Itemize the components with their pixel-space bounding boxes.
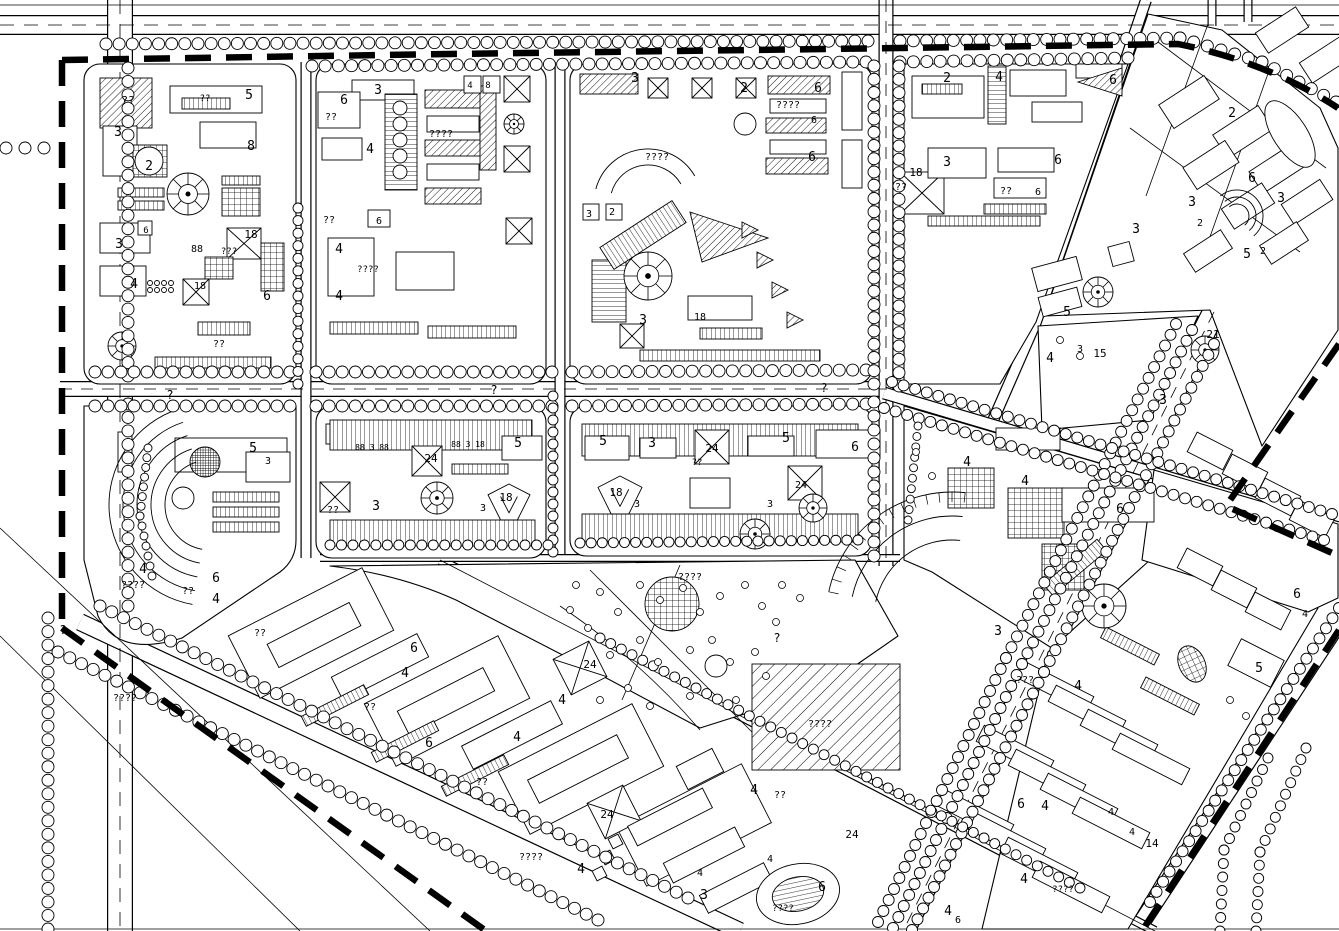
parcel-number-label: 18 [694, 312, 706, 323]
tree-icon [702, 57, 714, 69]
building [322, 138, 362, 160]
tree-icon [271, 400, 283, 412]
tree-icon [412, 758, 424, 770]
parcel-number-label: 3 [648, 436, 656, 451]
tree-icon [176, 641, 188, 653]
tree-icon [1078, 590, 1089, 601]
parcel-number-label: ? [166, 388, 173, 402]
tree-icon [332, 60, 344, 72]
tree-icon [888, 923, 899, 931]
parcel-number-label: 3 [586, 209, 592, 220]
tree-icon [586, 36, 598, 48]
tree-icon [1148, 400, 1159, 411]
tree-icon [139, 38, 151, 50]
tree-icon [687, 693, 694, 700]
tree-icon [753, 536, 763, 546]
tree-icon [1214, 503, 1225, 514]
tree-icon [440, 540, 450, 550]
tree-icon [1039, 577, 1050, 588]
tree-icon [1281, 789, 1291, 799]
tree-icon [967, 806, 978, 817]
tree-icon [1002, 411, 1013, 422]
flower-plaza [421, 482, 453, 514]
tree-icon [543, 58, 555, 70]
tree-icon [1180, 393, 1191, 404]
paved-terrace [222, 188, 260, 216]
parking-comb [213, 492, 279, 502]
tree-icon [334, 786, 346, 798]
building [585, 436, 629, 460]
tree-icon [376, 366, 388, 378]
hatched-building [425, 188, 481, 204]
tree-icon [868, 508, 880, 520]
parcel-number-label: ???? [113, 693, 137, 704]
parcel-number-label: 4 [1129, 827, 1135, 838]
tree-icon [868, 113, 880, 125]
parcel-number-label: 88 3 88 [355, 443, 389, 452]
tree-icon [1000, 844, 1010, 854]
tree-icon [775, 536, 785, 546]
parking-comb [213, 522, 279, 532]
tree-icon [1254, 860, 1264, 870]
tree-icon [467, 366, 479, 378]
tree-icon [1090, 568, 1101, 579]
tree-icon [405, 540, 415, 550]
tree-icon [1171, 319, 1182, 330]
tree-icon [883, 895, 894, 906]
tree-icon [893, 153, 905, 165]
tree-icon [893, 233, 905, 245]
tree-icon [754, 57, 766, 69]
parking-comb [922, 84, 962, 94]
parcel-number-label: 6 [263, 289, 271, 304]
building [1032, 102, 1082, 122]
tree-icon [520, 540, 530, 550]
tree-icon [925, 416, 936, 427]
paved-terrace [948, 468, 994, 508]
tree-icon [686, 365, 698, 377]
tree-icon [1095, 52, 1107, 64]
tree-icon [868, 126, 880, 138]
tree-icon [1176, 346, 1187, 357]
paved-terrace [948, 468, 994, 508]
tree-icon [1169, 415, 1180, 426]
parcel-number-label: ???? [519, 852, 543, 863]
tree-icon [840, 761, 850, 771]
tree-icon [921, 818, 932, 829]
tree-icon [122, 236, 134, 248]
tree-icon [1137, 421, 1148, 432]
tree-icon [467, 400, 479, 412]
parcel-number-label: 4 [558, 693, 566, 708]
tree-icon [597, 589, 604, 596]
parcel-number-label: 8 [485, 81, 490, 91]
tree-icon [797, 595, 804, 602]
tree-icon [557, 58, 569, 70]
tree-row [893, 60, 905, 392]
tree-icon [541, 822, 553, 834]
tree-icon [1066, 562, 1077, 573]
tree-icon [94, 600, 106, 612]
tree-icon [570, 58, 582, 70]
tree-icon [1191, 496, 1202, 507]
tree-icon [141, 623, 153, 635]
tree-icon [606, 366, 618, 378]
tree-icon [548, 511, 558, 521]
tree-icon [1145, 897, 1156, 908]
tree-icon [1203, 805, 1214, 816]
tree-icon [42, 666, 54, 678]
tree-icon [1252, 776, 1262, 786]
tree-icon [122, 506, 134, 518]
tree-icon [140, 532, 148, 540]
tree-icon [548, 451, 558, 461]
tree-icon [1165, 368, 1176, 379]
parcel-number-label: ?? [476, 777, 488, 788]
tree-icon [831, 535, 841, 545]
tree-icon [1216, 785, 1227, 796]
tree-icon [1215, 926, 1225, 931]
tree-icon [606, 400, 618, 412]
tree-icon [1258, 765, 1268, 775]
tree-icon [1082, 529, 1093, 540]
tree-icon [893, 140, 905, 152]
tree-icon [862, 772, 872, 782]
tree-icon [507, 366, 519, 378]
tree-icon [122, 196, 134, 208]
tree-icon [42, 882, 54, 894]
parcel-number-label: ? [59, 623, 66, 637]
parcel-number-label: ???? [357, 265, 379, 275]
tree-icon [475, 856, 487, 868]
tree-icon [533, 400, 545, 412]
tree-icon [122, 492, 134, 504]
building [1299, 37, 1339, 83]
tree-icon [968, 827, 978, 837]
tree-icon [912, 914, 923, 925]
tree-icon [926, 805, 936, 815]
tree-icon [893, 207, 905, 219]
flower-plaza [624, 252, 672, 300]
tree-icon [909, 879, 920, 890]
tree-icon [868, 338, 880, 350]
tree-icon [872, 777, 882, 787]
tree-icon [193, 366, 205, 378]
paved-terrace [261, 243, 284, 291]
tree-icon [486, 862, 498, 874]
tree-icon [259, 682, 271, 694]
tree-icon [1192, 371, 1203, 382]
tree-icon [510, 873, 522, 885]
parcel-number-label: 4 [366, 142, 374, 157]
tree-icon [428, 37, 440, 49]
tree-icon [494, 400, 506, 412]
tree-icon [734, 705, 744, 715]
tree-icon [1262, 714, 1273, 725]
tree-icon [1121, 415, 1132, 426]
tree-icon [853, 535, 863, 545]
tree-icon [807, 398, 819, 410]
round-plaza [162, 288, 167, 293]
tree-icon [868, 438, 880, 450]
parcel-number-label: ? [490, 383, 497, 397]
tree-icon [947, 34, 959, 46]
tree-icon [319, 60, 331, 72]
parking-comb [452, 464, 508, 474]
tree-icon [507, 36, 519, 48]
tree-icon [830, 755, 840, 765]
tree-icon [534, 36, 546, 48]
tree-icon [783, 35, 795, 47]
tree-icon [1156, 486, 1167, 497]
tree-icon [990, 675, 1001, 686]
tree-icon [533, 366, 545, 378]
tree-row [293, 203, 303, 389]
tree-icon [1241, 799, 1251, 809]
tree-icon [138, 522, 146, 530]
tree-icon [1334, 603, 1339, 614]
tree-icon [1158, 437, 1169, 448]
tree-icon [310, 774, 322, 786]
tree-icon [713, 399, 725, 411]
tree-icon [394, 540, 404, 550]
parking-comb [222, 176, 260, 185]
tree-icon [768, 57, 780, 69]
parcel-number-label: 2 [1228, 106, 1236, 121]
tree-icon [322, 780, 334, 792]
tree-icon [364, 734, 376, 746]
tree-icon [1327, 509, 1338, 520]
circle [148, 281, 153, 286]
parcel-number-label: ?? [1000, 186, 1012, 197]
tree-icon [1254, 873, 1264, 883]
tree-icon [780, 365, 792, 377]
cad-site-plan-canvas: ????53823688???186418??36??????448??64??… [0, 0, 1339, 931]
tree-icon [1061, 534, 1072, 545]
tree-icon [1132, 432, 1143, 443]
tree-icon [948, 55, 960, 67]
tree-icon [1149, 362, 1160, 373]
circle [172, 487, 194, 509]
tree-icon [894, 789, 904, 799]
tree-icon [675, 57, 687, 69]
tree-icon [742, 582, 749, 589]
tree-icon [1061, 623, 1072, 634]
tree-icon [963, 769, 974, 780]
tree-icon [990, 714, 1001, 725]
tree-icon [400, 752, 412, 764]
parcel-number-label: 6 [340, 93, 348, 108]
tree-icon [245, 400, 257, 412]
parcel-number-label: 3 [994, 624, 1002, 639]
tree-icon [548, 391, 558, 401]
tree-icon [682, 892, 694, 904]
parking-comb [922, 84, 962, 94]
hatched-building [425, 188, 481, 204]
tree-icon [1088, 518, 1099, 529]
tree-icon [1151, 886, 1162, 897]
tree-icon [1118, 446, 1129, 457]
tree-icon [904, 516, 912, 524]
tree-icon [820, 398, 832, 410]
tree-icon [893, 193, 905, 205]
tree-icon [787, 733, 797, 743]
tree-icon [988, 54, 1000, 66]
tree-icon [868, 312, 880, 324]
tree-icon [247, 676, 259, 688]
tree-icon [653, 537, 663, 547]
tree-icon [908, 474, 916, 482]
tree-icon [153, 38, 165, 50]
tower-building [692, 78, 712, 98]
tree-icon [868, 73, 880, 85]
tree-icon [42, 869, 54, 881]
tree-icon [317, 711, 329, 723]
tree-icon [293, 228, 303, 238]
tree-icon [931, 796, 942, 807]
tree-icon [1275, 801, 1285, 811]
tree-icon [1017, 710, 1028, 721]
tree-icon [647, 703, 654, 710]
tree-icon [141, 400, 153, 412]
tree-icon [569, 902, 581, 914]
building [585, 436, 629, 460]
tree-icon [546, 366, 558, 378]
tree-icon [148, 572, 156, 580]
tree-icon [533, 885, 545, 897]
tree-icon [1327, 613, 1338, 624]
tree-icon [42, 774, 54, 786]
tree-icon [42, 815, 54, 827]
tree-icon [517, 810, 529, 822]
tree-icon [1291, 766, 1301, 776]
round-plaza [155, 288, 160, 293]
tree-icon [42, 909, 54, 921]
parcel-number-label: 4 [335, 242, 343, 257]
round-plaza [155, 281, 160, 286]
tree-icon [639, 36, 651, 48]
building [1187, 432, 1233, 470]
tree-icon [868, 272, 880, 284]
tree-icon [122, 560, 134, 572]
tree-icon [742, 536, 752, 546]
hatched-building [766, 158, 828, 174]
tree-icon [797, 536, 807, 546]
parcel-number-label: 3 [943, 155, 951, 170]
tree-icon [704, 36, 716, 48]
parking-comb [222, 176, 260, 185]
tree-icon [42, 707, 54, 719]
tree-icon [819, 750, 829, 760]
tree-icon [597, 697, 604, 704]
tree-icon [389, 400, 401, 412]
parcel-number-label: 4 [944, 904, 952, 919]
tree-icon [1107, 443, 1118, 454]
circle [162, 288, 167, 293]
tree-icon [293, 278, 303, 288]
tree-icon [1055, 53, 1067, 65]
tree-icon [915, 829, 926, 840]
tree-icon [451, 540, 461, 550]
parcel-number-label: 2 [145, 159, 153, 174]
tree-icon [128, 366, 140, 378]
tree-icon [136, 512, 144, 520]
tree-row [100, 35, 874, 50]
tree-icon [968, 758, 979, 769]
tree-icon [477, 59, 489, 71]
tree-icon [1286, 778, 1296, 788]
tree-icon [1288, 673, 1299, 684]
parking-comb [592, 260, 626, 322]
tree-icon [660, 399, 672, 411]
tree-icon [849, 35, 861, 47]
round-plaza [148, 281, 153, 286]
tree-icon [545, 891, 557, 903]
tree-icon [717, 593, 724, 600]
tree-icon [1038, 615, 1049, 626]
tree-icon [1160, 340, 1171, 351]
tree-icon [142, 463, 150, 471]
parcel-number-label: 4 [1074, 679, 1082, 694]
tree-icon [1170, 357, 1181, 368]
tree-icon [111, 675, 123, 687]
tree-icon [727, 659, 734, 666]
tree-icon [649, 58, 661, 70]
tree-icon [1141, 470, 1152, 481]
parcel-number-label: 3 [480, 503, 486, 514]
tree-icon [154, 400, 166, 412]
tree-icon [1122, 52, 1134, 64]
tree-icon [1014, 415, 1025, 426]
tree-icon [494, 799, 506, 811]
tree-icon [1084, 579, 1095, 590]
tree-icon [673, 399, 685, 411]
tree-row [566, 398, 872, 412]
parcel-number-label: 88 [191, 244, 203, 255]
tree-icon [206, 366, 218, 378]
tree-icon [1099, 459, 1110, 470]
tree-icon [1227, 697, 1234, 704]
tree-icon [271, 366, 283, 378]
parcel-number-label: 4 [1021, 474, 1029, 489]
tree-icon [646, 365, 658, 377]
tree-icon [415, 400, 427, 412]
tree-icon [435, 769, 447, 781]
building [1187, 432, 1233, 470]
tree-icon [1199, 470, 1210, 481]
parcel-number-label: 6 [955, 915, 961, 926]
flower-plaza [1082, 584, 1126, 628]
tree-icon [385, 59, 397, 71]
tree-icon [773, 619, 780, 626]
tree-icon [252, 745, 264, 757]
tree-icon [902, 409, 913, 420]
tree-icon [608, 538, 618, 548]
tree-icon [893, 273, 905, 285]
parcel-number-label: 4 [697, 868, 703, 879]
tree-icon [1165, 329, 1176, 340]
parcel-number-label: 2 [1260, 246, 1266, 257]
flower-center [811, 506, 814, 509]
tree-icon [1037, 422, 1048, 433]
tree-icon [122, 75, 134, 87]
tree-icon [402, 400, 414, 412]
circle [393, 149, 407, 163]
tree-icon [143, 454, 151, 462]
tree-icon [958, 822, 968, 832]
tree-icon [122, 425, 134, 437]
tree-icon [1075, 883, 1085, 893]
